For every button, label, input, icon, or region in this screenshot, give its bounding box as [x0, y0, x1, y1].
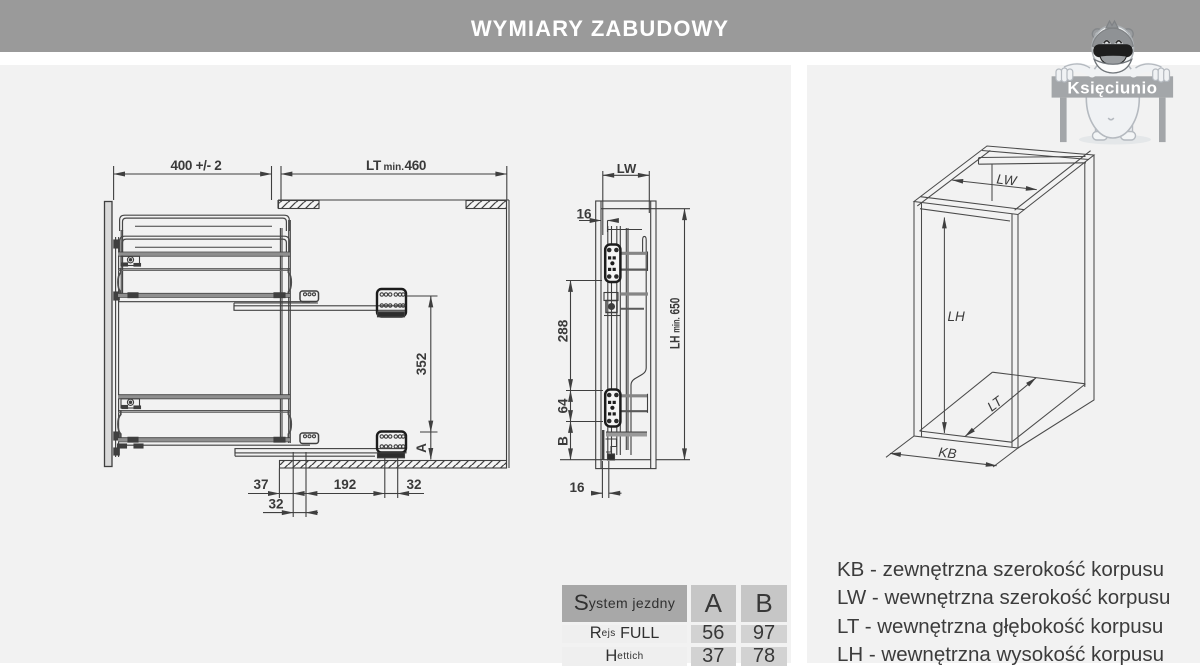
- svg-text:37: 37: [253, 477, 268, 492]
- svg-text:32: 32: [406, 477, 421, 492]
- svg-text:16: 16: [569, 480, 585, 495]
- svg-text:LH min. 650: LH min. 650: [667, 297, 683, 349]
- svg-text:A: A: [414, 443, 429, 453]
- svg-text:LT: LT: [984, 392, 1006, 414]
- svg-text:LT: LT: [366, 158, 382, 173]
- svg-text:Księciunio: Księciunio: [1067, 79, 1157, 98]
- svg-text:288: 288: [556, 319, 571, 342]
- svg-text:LW: LW: [617, 161, 637, 176]
- svg-text:B: B: [556, 436, 571, 446]
- svg-text:32: 32: [268, 497, 283, 512]
- svg-text:KB: KB: [938, 445, 958, 462]
- svg-text:64: 64: [556, 398, 571, 414]
- svg-text:LH: LH: [948, 309, 966, 324]
- svg-text:400 +/- 2: 400 +/- 2: [171, 158, 222, 173]
- svg-text:16: 16: [576, 206, 592, 221]
- svg-text:352: 352: [414, 353, 429, 376]
- svg-text:460: 460: [405, 158, 427, 173]
- svg-text:192: 192: [334, 477, 357, 492]
- svg-text:min.: min.: [384, 162, 405, 173]
- svg-text:LW: LW: [996, 171, 1019, 188]
